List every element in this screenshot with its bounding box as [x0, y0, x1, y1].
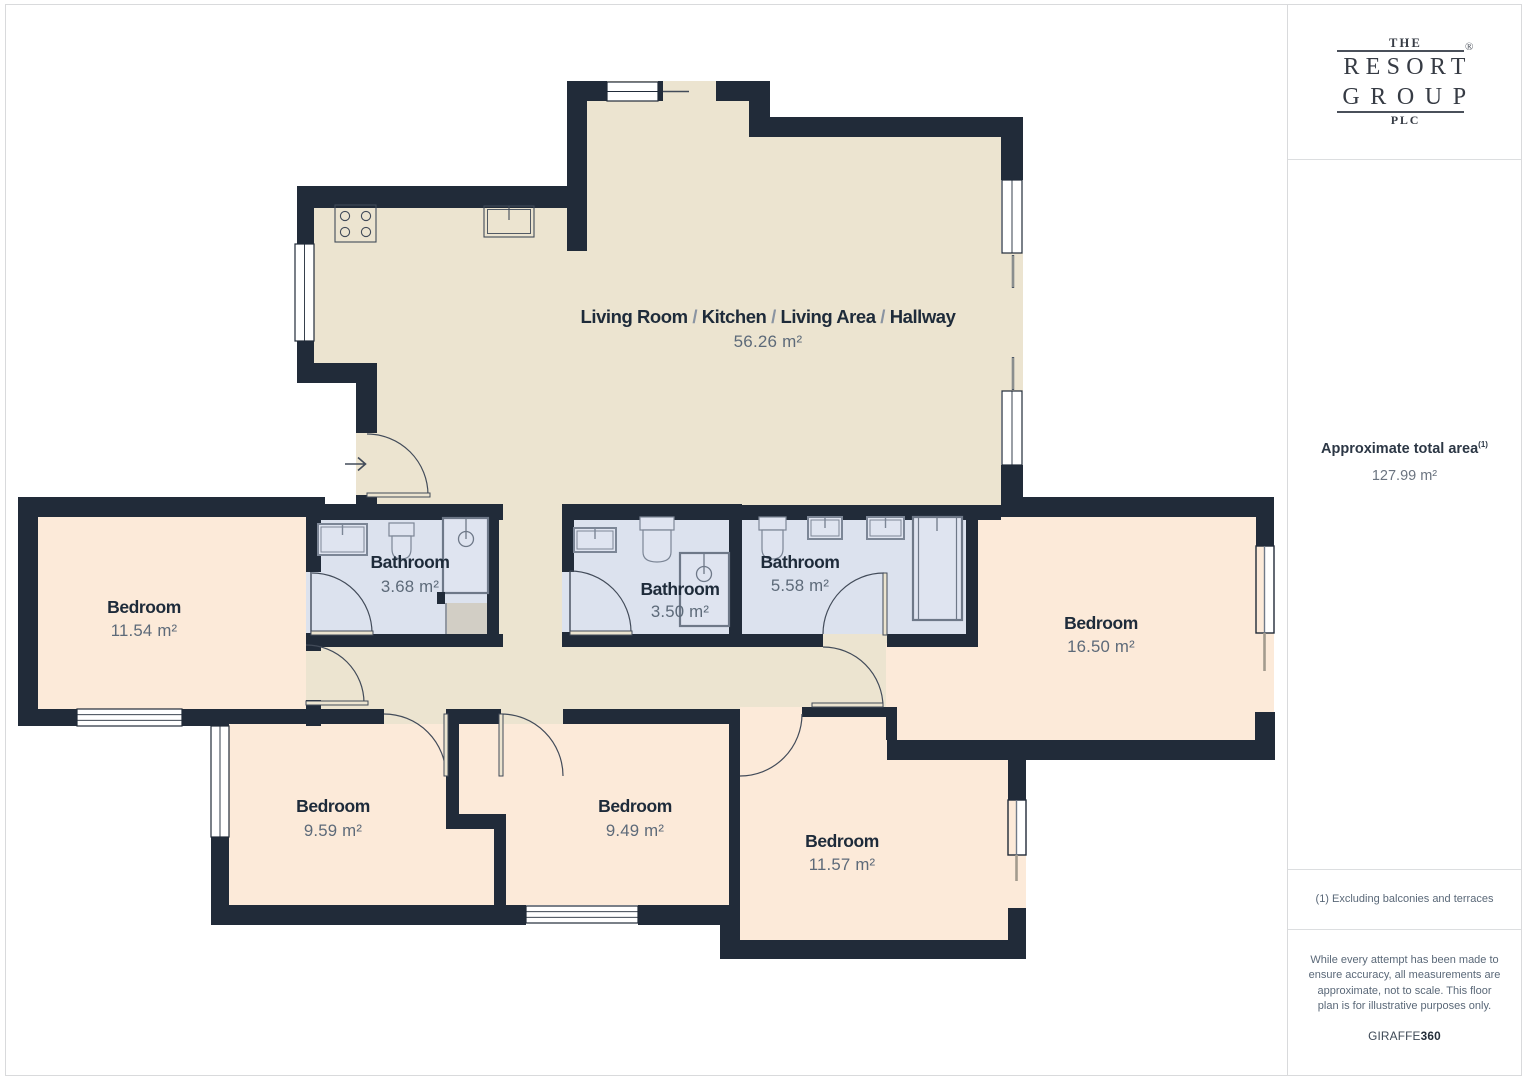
svg-text:Bedroom: Bedroom — [296, 796, 370, 816]
svg-text:11.54 m²: 11.54 m² — [111, 621, 178, 640]
svg-text:56.26 m²: 56.26 m² — [734, 332, 803, 351]
svg-text:Bathroom: Bathroom — [370, 552, 449, 572]
svg-text:5.58 m²: 5.58 m² — [771, 576, 830, 595]
svg-text:Bedroom: Bedroom — [1064, 613, 1138, 633]
svg-text:16.50 m²: 16.50 m² — [1067, 637, 1135, 656]
svg-text:Bathroom: Bathroom — [760, 552, 839, 572]
svg-text:11.57 m²: 11.57 m² — [809, 855, 876, 874]
svg-text:9.49 m²: 9.49 m² — [606, 821, 665, 840]
svg-text:Bedroom: Bedroom — [805, 831, 879, 851]
svg-text:Bedroom: Bedroom — [107, 597, 181, 617]
svg-text:Bathroom: Bathroom — [640, 579, 719, 599]
svg-text:Living Room / Kitchen / Living: Living Room / Kitchen / Living Area / Ha… — [581, 306, 957, 327]
svg-text:9.59 m²: 9.59 m² — [304, 821, 363, 840]
svg-text:3.50 m²: 3.50 m² — [651, 602, 710, 621]
svg-text:3.68 m²: 3.68 m² — [381, 577, 440, 596]
svg-text:Bedroom: Bedroom — [598, 796, 672, 816]
